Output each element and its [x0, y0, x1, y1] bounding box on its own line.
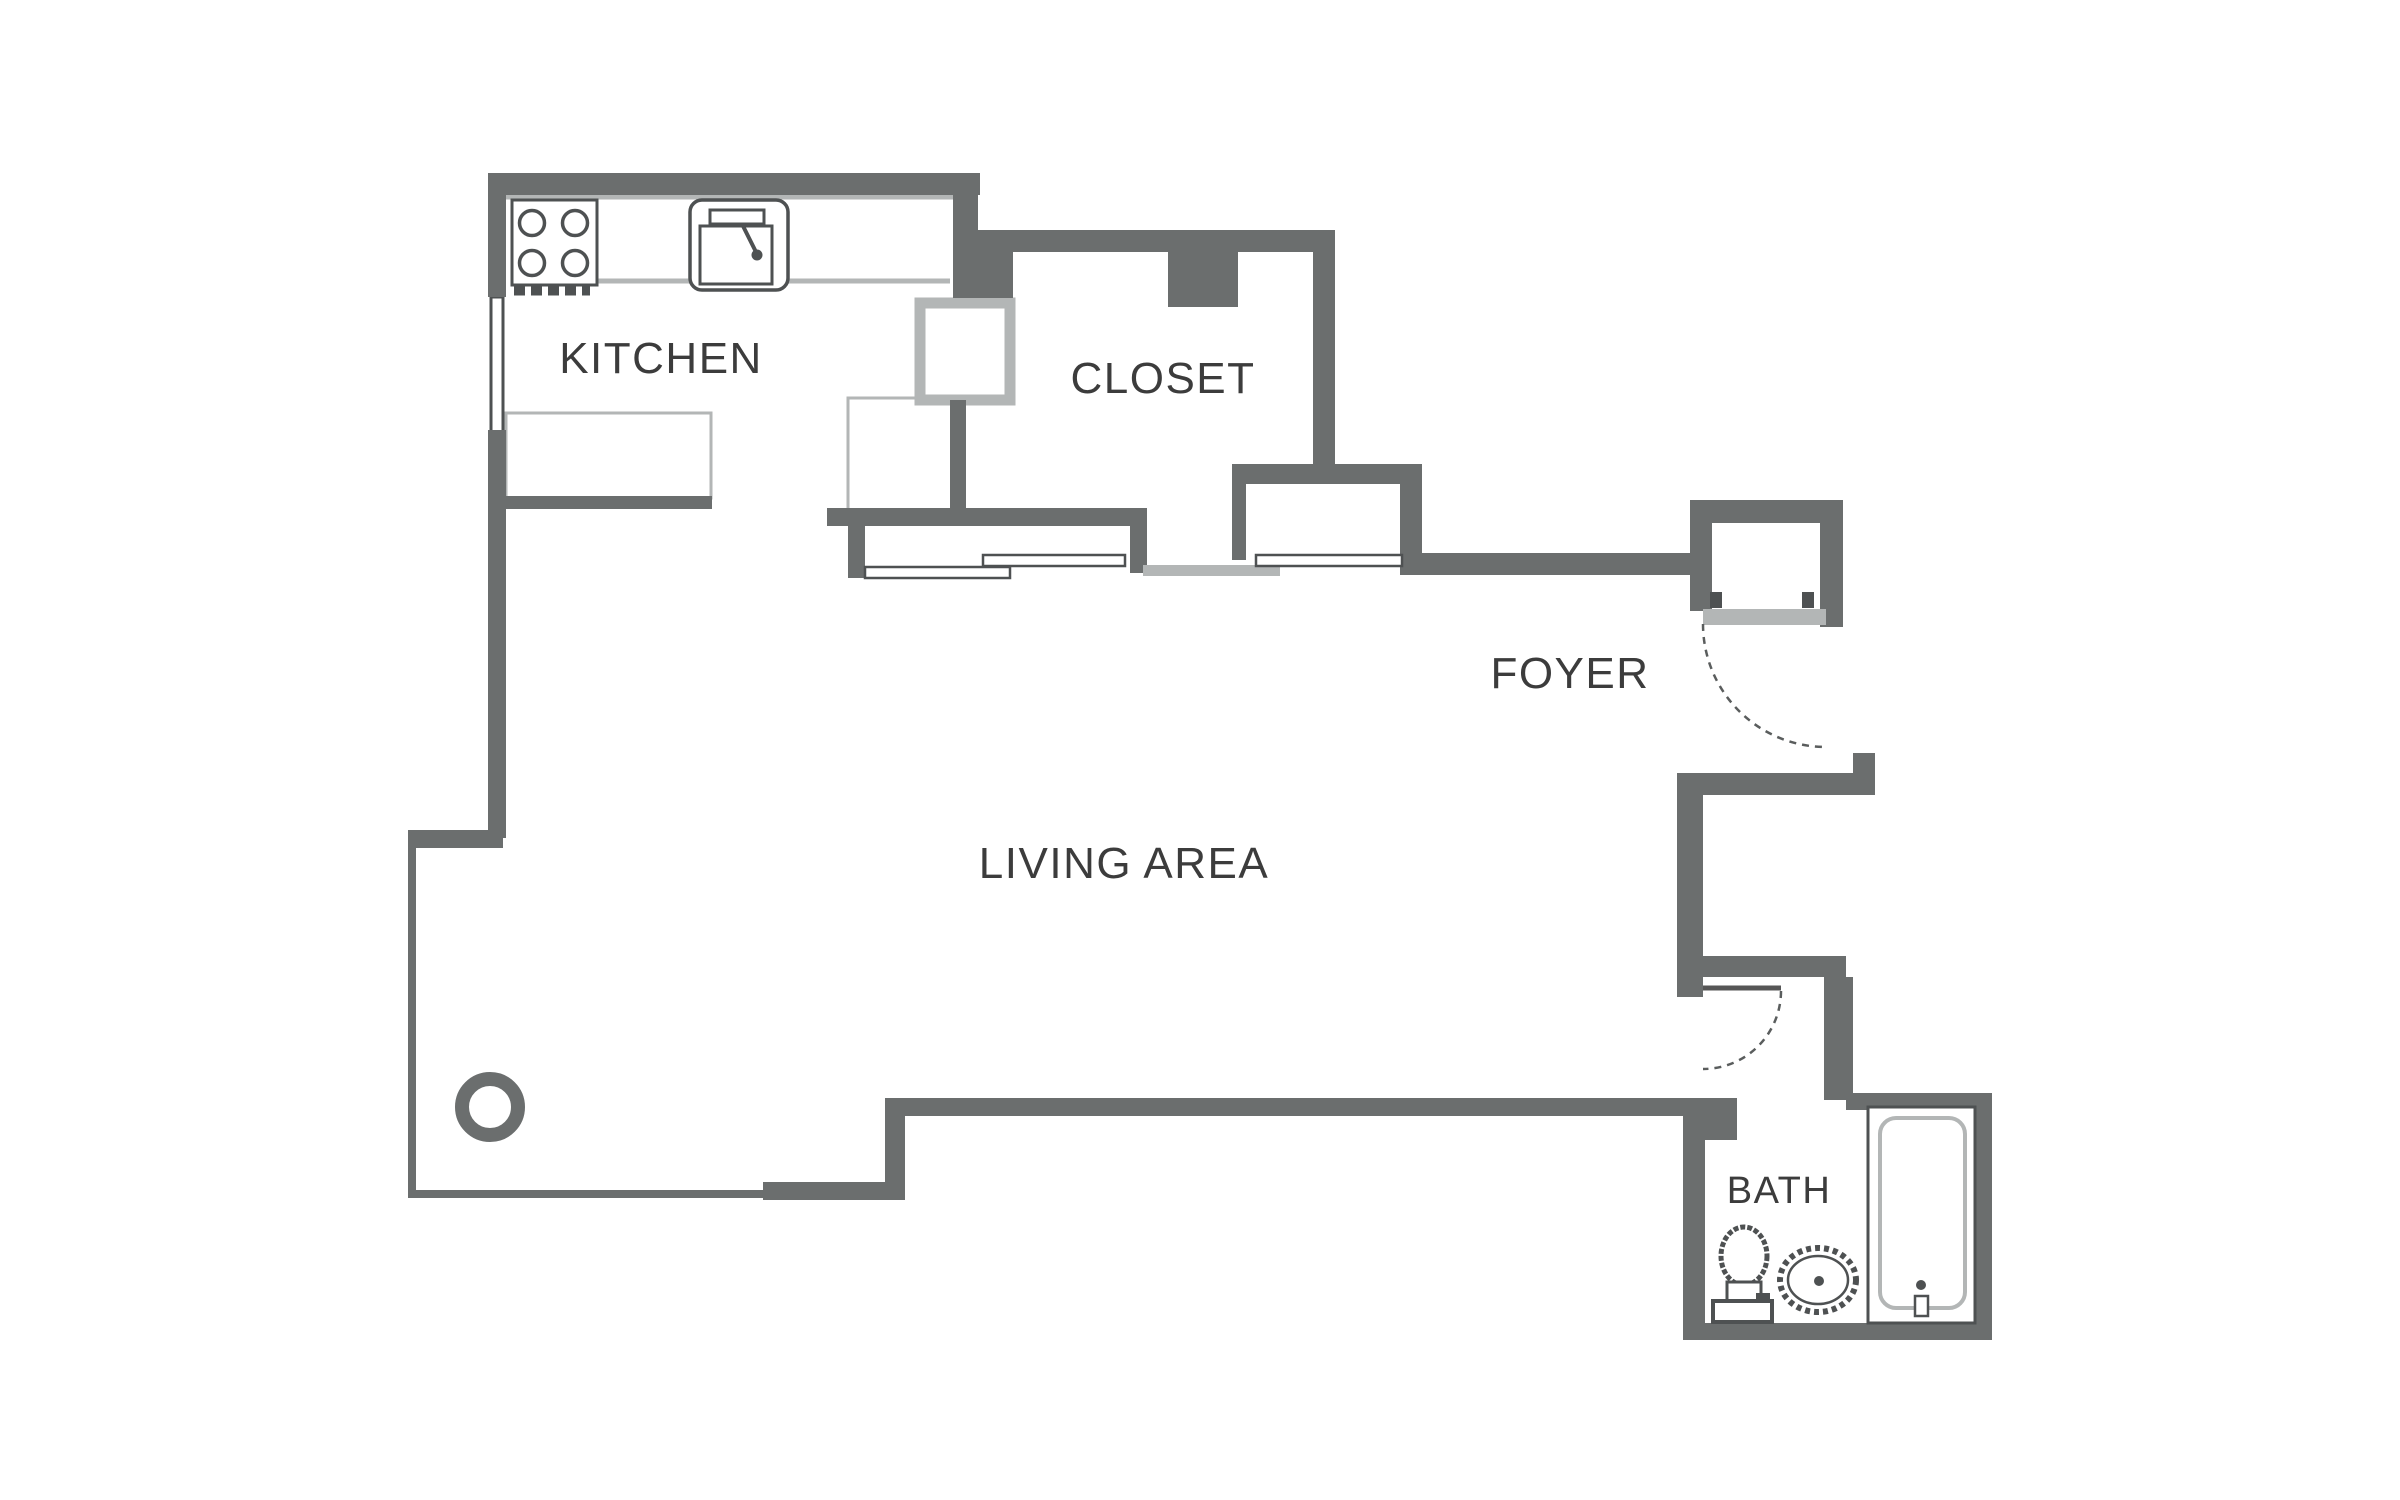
bath-door-swing-arc	[1703, 991, 1781, 1069]
living-bottom-wall-step	[763, 1182, 903, 1200]
sliding-door-panel	[983, 555, 1125, 566]
living-area-label: LIVING AREA	[979, 839, 1269, 888]
kitchen-fixtures	[512, 200, 788, 291]
closet-right-wall	[1313, 252, 1335, 464]
bath-sink-icon	[1780, 1248, 1856, 1312]
closet-top-wall	[953, 230, 1335, 252]
kitchen-sink-icon	[690, 200, 788, 290]
counter-island	[506, 413, 711, 498]
foyer-top-wall	[1400, 553, 1690, 575]
bath-fixtures	[1713, 1107, 1975, 1323]
bath-door	[1703, 988, 1781, 1069]
tub-faucet	[1915, 1296, 1928, 1316]
refrigerator	[848, 398, 952, 513]
drain-dot	[752, 250, 763, 261]
pass-through-cabinet	[920, 303, 1010, 400]
bath-step-block	[1683, 1098, 1737, 1140]
closet-label: CLOSET	[1070, 354, 1255, 403]
foyer-label: FOYER	[1490, 649, 1649, 698]
living-left-wall	[408, 846, 416, 1198]
foyer-niche-bottom-wall	[1703, 956, 1846, 977]
closet-compartment-top-wall	[1232, 464, 1422, 484]
closet-corner-block	[978, 252, 1013, 298]
toilet-tank	[1713, 1301, 1772, 1322]
kitchen-closet-divider-wall	[950, 400, 966, 516]
sliding-door-left-jamb	[848, 523, 865, 578]
drain-dot	[1814, 1276, 1824, 1286]
entry-closet-left-wall	[1690, 523, 1712, 611]
counter-island-front-wall	[506, 496, 712, 509]
foyer-niche-left-wall	[1677, 795, 1703, 997]
closet-duct-block	[1168, 252, 1238, 307]
closet-compartment-left-stub	[1232, 484, 1246, 560]
sliding-door-panel	[865, 567, 1010, 578]
room-labels: KITCHEN CLOSET FOYER LIVING AREA BATH	[559, 334, 1831, 1212]
tub-drain-dot	[1916, 1280, 1926, 1290]
entry-door-swing-arc	[1703, 624, 1826, 747]
entry-door-leaf	[1703, 609, 1826, 625]
kitchen-left-wall-lower	[488, 430, 506, 838]
entry-closet-top-wall	[1690, 500, 1843, 523]
entry-door	[1703, 592, 1826, 747]
faucet-bar	[710, 210, 764, 224]
bathtub-icon	[1868, 1107, 1975, 1323]
bath-label: BATH	[1727, 1170, 1832, 1212]
bath-left-wall	[1683, 1140, 1705, 1340]
tub-outline	[1868, 1107, 1975, 1323]
living-left-step-wall	[408, 830, 503, 848]
stove-icon	[512, 200, 597, 291]
column-icon	[462, 1079, 518, 1135]
toilet-icon	[1713, 1227, 1772, 1322]
toilet-bowl	[1721, 1227, 1767, 1285]
foyer-niche-top-wall	[1677, 773, 1875, 795]
floor-plan-page: KITCHEN CLOSET FOYER LIVING AREA BATH	[0, 0, 2400, 1500]
floor-plan-drawing: KITCHEN CLOSET FOYER LIVING AREA BATH	[0, 0, 2400, 1500]
bath-bottom-wall	[1683, 1323, 1992, 1340]
living-bottom-wall	[903, 1098, 1683, 1116]
door-jamb-mark	[1710, 592, 1722, 608]
kitchen-left-wall-upper	[488, 173, 506, 297]
kitchen-top-wall	[488, 173, 980, 195]
living-bottom-wall-thin	[408, 1190, 768, 1198]
window	[491, 297, 503, 432]
sliding-door-center-jamb	[1130, 513, 1147, 573]
kitchen-label: KITCHEN	[559, 334, 763, 383]
bath-corridor-right-wall	[1824, 977, 1853, 1100]
closet-lower-wall	[827, 508, 1147, 526]
living-bottom-connector-wall	[885, 1098, 905, 1200]
sliding-door-panel	[1256, 555, 1402, 566]
door-jamb-mark	[1802, 592, 1814, 608]
